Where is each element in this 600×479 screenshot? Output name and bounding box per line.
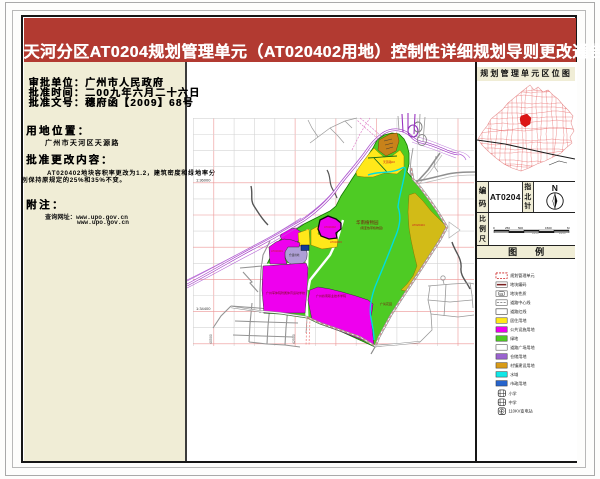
svg-text:42500: 42500	[292, 334, 296, 344]
svg-text:M: M	[567, 226, 570, 230]
svg-text:AT020401: AT020401	[271, 249, 283, 253]
svg-text:中学: 中学	[509, 399, 517, 405]
svg-text:道路中心线: 道路中心线	[510, 299, 530, 305]
svg-text:居住用地: 居住用地	[510, 317, 526, 323]
svg-text:道路广场用地: 道路广场用地	[510, 344, 534, 350]
svg-text:小学: 小学	[509, 390, 517, 396]
svg-text:500: 500	[518, 226, 523, 230]
svg-text:1:36000: 1:36000	[196, 178, 211, 183]
svg-text:0: 0	[493, 226, 495, 230]
svg-text:仓储用地: 仓储用地	[289, 253, 300, 257]
svg-text:1500: 1500	[545, 226, 552, 230]
svg-text:地块编码: 地块编码	[510, 281, 526, 287]
svg-text:广氮花园: 广氮花园	[380, 301, 392, 306]
svg-text:市政用地: 市政用地	[510, 380, 526, 386]
svg-text:村镇建设用地: 村镇建设用地	[510, 362, 534, 368]
svg-text:(南亚热带植物园): (南亚热带植物园)	[360, 225, 383, 230]
svg-text:N: N	[552, 183, 558, 193]
svg-text:华南植物园: 华南植物园	[356, 219, 379, 226]
svg-text:水域: 水域	[510, 371, 518, 377]
svg-text:AT020402: AT020402	[324, 225, 336, 229]
svg-text:绿地: 绿地	[510, 335, 518, 341]
svg-text:道路红线: 道路红线	[510, 308, 526, 314]
svg-text:广州军体院附属体育运动学校: 广州军体院附属体育运动学校	[266, 290, 305, 295]
svg-text:公共设施用地: 公共设施用地	[510, 326, 534, 332]
svg-text:1:34400: 1:34400	[196, 306, 211, 311]
svg-text:AT020404: AT020404	[412, 223, 425, 227]
svg-text:天源路R2: 天源路R2	[383, 160, 395, 164]
svg-text:仓储用地: 仓储用地	[510, 353, 526, 359]
svg-text:广州岭南职业技术学院: 广州岭南职业技术学院	[316, 293, 346, 298]
svg-text:地块性质: 地块性质	[510, 290, 526, 296]
svg-text:AT020403: AT020403	[330, 240, 342, 244]
svg-text:40500: 40500	[209, 334, 213, 344]
svg-text:R2: R2	[500, 292, 504, 296]
svg-text:规划管理单元: 规划管理单元	[510, 272, 534, 278]
svg-text:250: 250	[505, 226, 510, 230]
svg-text:110KV变电站: 110KV变电站	[509, 408, 533, 414]
